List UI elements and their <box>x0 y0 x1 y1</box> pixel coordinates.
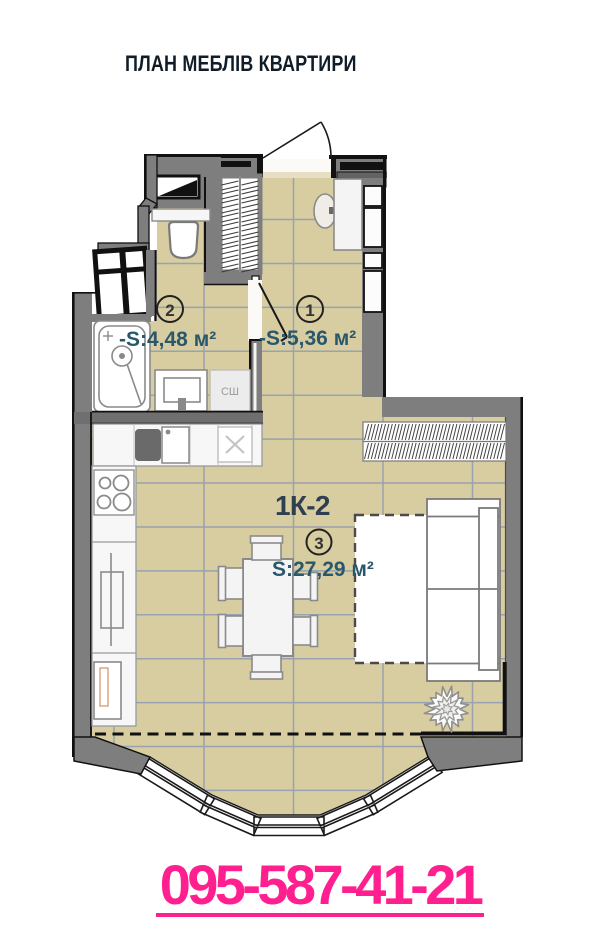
svg-text:-S:4,48 м²: -S:4,48 м² <box>119 328 216 351</box>
svg-text:1К-2: 1К-2 <box>275 490 330 521</box>
svg-text:-S:5,36 м²: -S:5,36 м² <box>259 327 356 350</box>
svg-text:1: 1 <box>305 301 314 320</box>
svg-text:S:27,29 м²: S:27,29 м² <box>272 558 374 581</box>
svg-text:2: 2 <box>165 301 174 320</box>
svg-text:СШ: СШ <box>221 386 239 398</box>
svg-text:3: 3 <box>314 534 323 553</box>
